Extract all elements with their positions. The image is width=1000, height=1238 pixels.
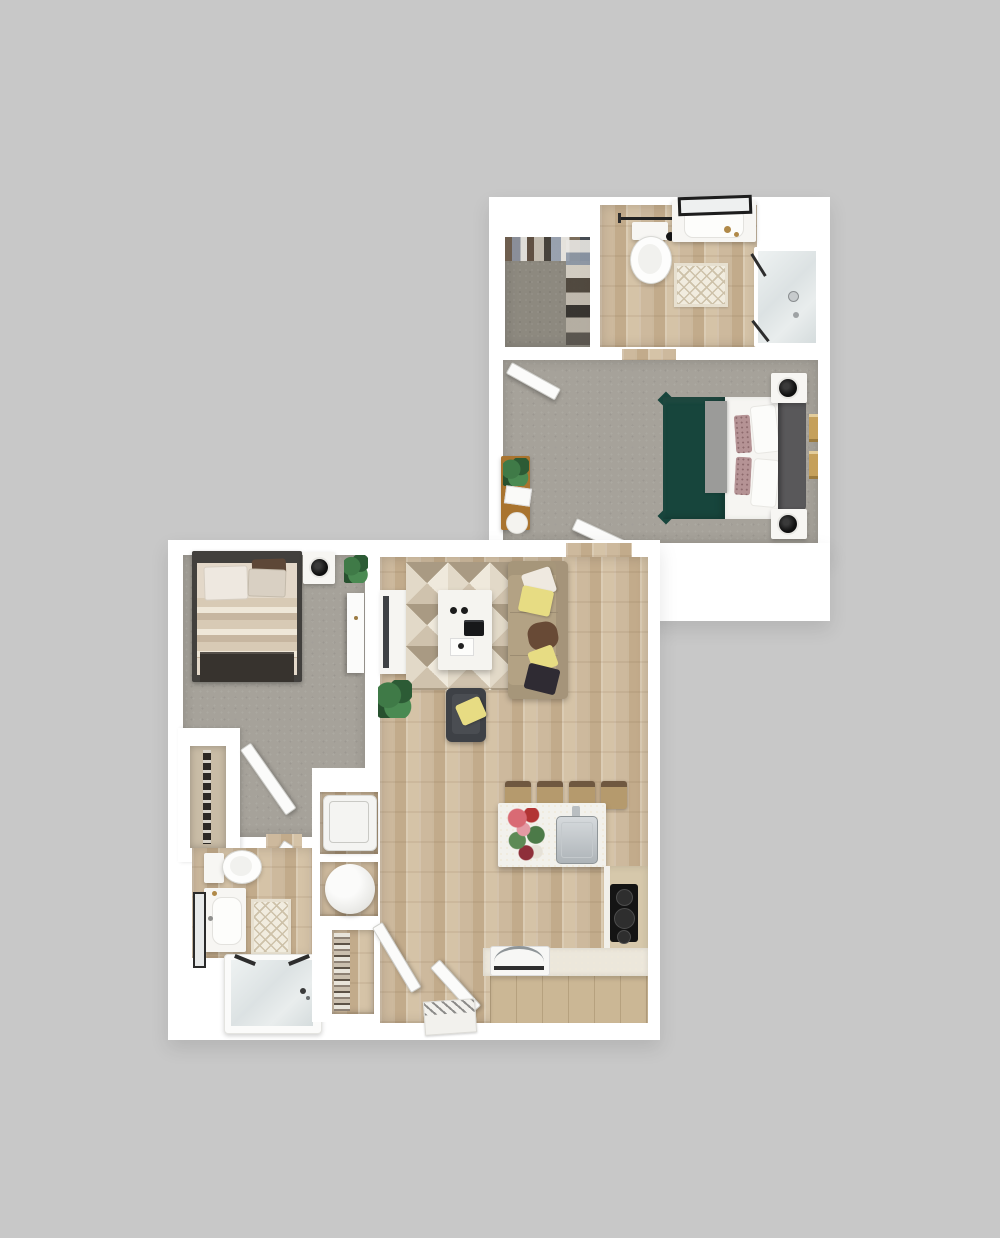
print-pillow-1 (734, 414, 753, 453)
lower-brass-accessory (212, 891, 217, 896)
tub-handle (300, 988, 306, 994)
remote-2 (461, 607, 468, 614)
upper-unit-lower-slab (648, 543, 830, 621)
bedroom-corner-plant (344, 555, 368, 583)
hanging-clothes-side (566, 240, 590, 345)
wall-art-1 (809, 414, 818, 442)
round-tray (506, 512, 528, 534)
white-pillow-2 (750, 458, 780, 508)
burner-2 (614, 908, 635, 929)
headboard (778, 399, 806, 511)
lower-bath-mat (251, 899, 291, 955)
towel-bar-cap-left (618, 213, 621, 223)
closet-hanging-rod (203, 750, 211, 844)
burner-1 (616, 889, 633, 906)
upper-leaning-mirror (678, 195, 753, 217)
laptop (504, 485, 532, 506)
washer-door-seam (329, 801, 369, 843)
lower-toilet-tank (204, 853, 224, 883)
white-pillow-lower (203, 565, 248, 601)
shower-head (788, 291, 799, 302)
brass-accessory-1 (724, 226, 731, 233)
upper-unit-opening-threshold (566, 543, 632, 557)
linen-shelves (334, 933, 350, 1011)
burner-3 (617, 930, 631, 944)
remote-1 (450, 607, 457, 614)
shower-drain (793, 312, 799, 318)
water-heater (325, 864, 375, 914)
white-pillow-1 (750, 404, 781, 454)
toilet-seat-inner (638, 244, 662, 274)
entry-doormat (423, 998, 477, 1036)
brass-accessory-2 (734, 232, 739, 237)
floor-plan-canvas (0, 0, 1000, 1238)
tan-pillow (248, 568, 287, 597)
desk-plant (503, 458, 529, 486)
print-pillow-2 (734, 457, 752, 496)
living-floor-plant (378, 680, 412, 718)
dresser-knob (354, 616, 358, 620)
upper-bath-mat (674, 263, 728, 307)
tray-dot (458, 643, 464, 649)
island-sink-basin (561, 822, 593, 858)
table-lamp-top (779, 379, 797, 397)
lower-vanity-faucet (208, 916, 213, 921)
table-lamp-bottom (779, 515, 797, 533)
tv (383, 596, 389, 668)
bed-gray-throw (705, 401, 727, 493)
tub-drain (306, 996, 310, 1000)
towel-bar (620, 217, 676, 220)
foot-throw-dark (200, 652, 294, 682)
upper-shower-glass (758, 251, 816, 343)
lower-leaning-mirror (193, 892, 206, 968)
lower-vanity-basin (212, 897, 242, 945)
lower-table-lamp (311, 559, 328, 576)
island-flower-vase (505, 808, 549, 864)
bottom-cabinets (490, 976, 648, 1023)
lower-toilet-seat-inner (230, 856, 252, 876)
tall-dresser (347, 593, 364, 673)
media-box (464, 620, 484, 636)
oven-slot (494, 966, 544, 970)
wall-art-2 (809, 451, 818, 479)
lower-duvet-striped (197, 598, 297, 658)
